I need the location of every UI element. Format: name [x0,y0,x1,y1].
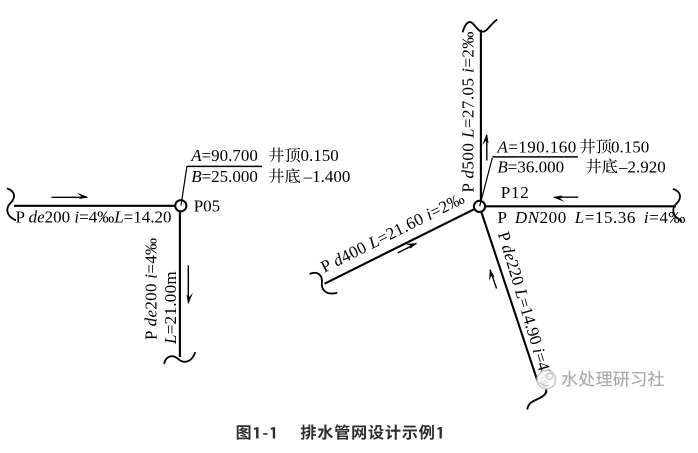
svg-text:B=25.000: B=25.000 [191,167,258,186]
svg-text:L=21.00m: L=21.00m [161,271,180,345]
svg-text:P d500 L=27.05 i=2‰: P d500 L=27.05 i=2‰ [459,31,478,192]
svg-text:P05: P05 [194,196,220,215]
svg-text:P DN200 L=15.36 i=4‰: P DN200 L=15.36 i=4‰ [498,208,686,227]
svg-text:A=190.160: A=190.160 [496,137,576,156]
svg-text:–2.920: –2.920 [618,157,666,176]
svg-text:P de200 i=4‰: P de200 i=4‰ [142,238,161,340]
svg-text:A=90.700: A=90.700 [190,146,258,165]
svg-text:B=36.000: B=36.000 [497,157,564,176]
svg-text:0.150: 0.150 [611,137,649,156]
svg-text:–1.400: –1.400 [303,167,351,186]
svg-text:P12: P12 [501,183,530,202]
svg-text:0.150: 0.150 [301,146,339,165]
svg-text:P de200 i=4‰L=14.20: P de200 i=4‰L=14.20 [16,208,172,227]
